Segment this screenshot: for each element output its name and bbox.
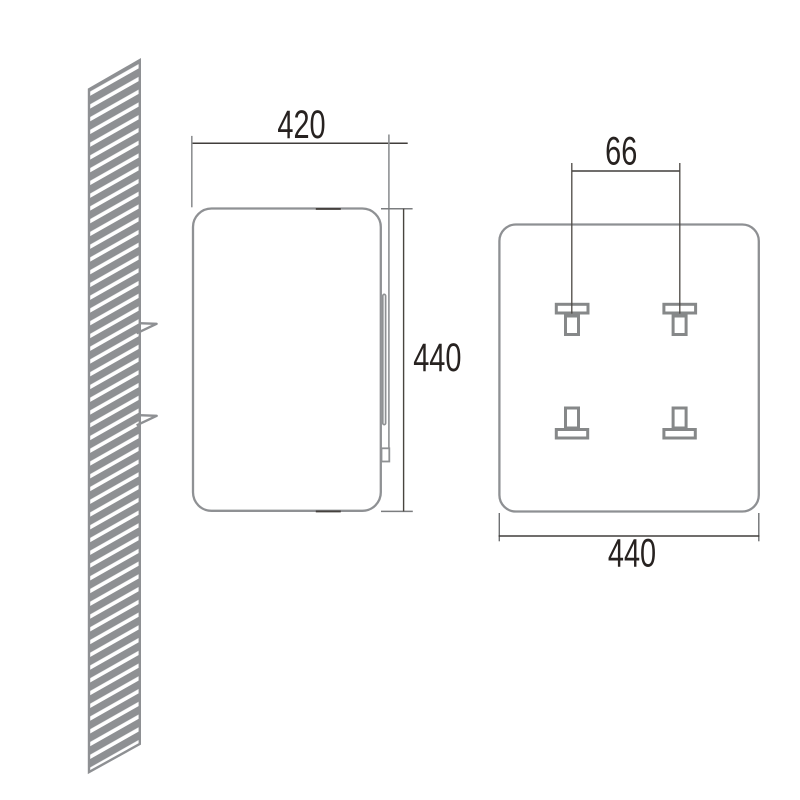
svg-text:420: 420 [277, 104, 325, 147]
svg-text:440: 440 [608, 532, 656, 575]
svg-text:66: 66 [605, 130, 637, 173]
svg-text:440: 440 [413, 337, 461, 380]
